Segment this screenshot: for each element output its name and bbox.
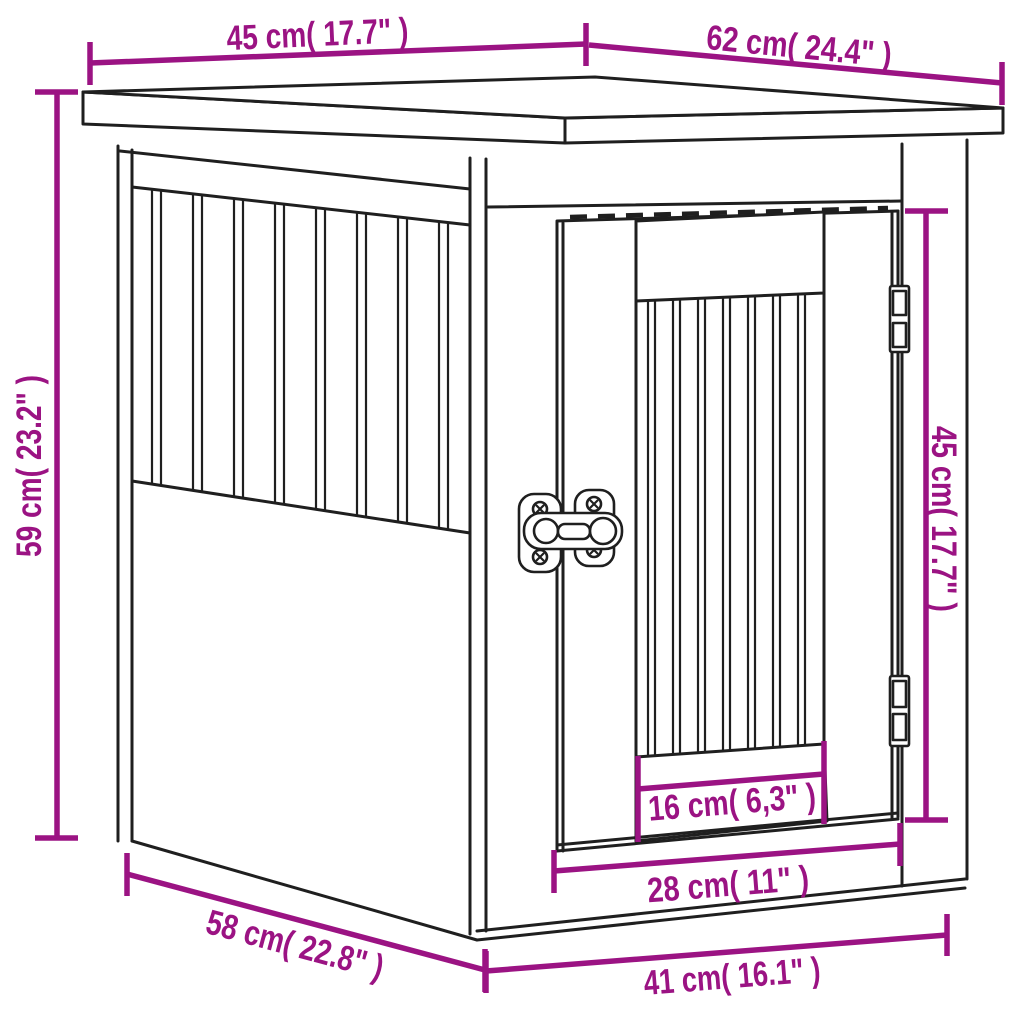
slat (193, 194, 202, 492)
dimension-label: 58 cm( 22.8" ) (202, 903, 388, 988)
left-side-panel (118, 146, 486, 940)
hinge-barrel (893, 714, 906, 740)
hinge-barrel (893, 291, 906, 315)
door-bar (648, 300, 655, 756)
side-top-rail-bottom-edge (132, 187, 470, 225)
dimension-top-depth: 45 cm( 17.7" ) (90, 11, 586, 85)
hinge-barrel (893, 681, 906, 707)
dimension-door-height: 45 cm( 17.7" ) (905, 211, 963, 820)
door-bar (673, 299, 680, 754)
latch-slot (558, 524, 590, 539)
door-bar (698, 298, 705, 753)
side-top-rail-top-edge (120, 151, 470, 189)
slat (357, 212, 366, 517)
slat (275, 203, 284, 505)
hinge-top (890, 286, 909, 352)
latch-pivot (534, 519, 558, 543)
dimension-label: 45 cm( 17.7" ) (226, 11, 410, 58)
hinge-barrel (893, 323, 906, 347)
dimension-label: 45 cm( 17.7" ) (924, 426, 963, 612)
door-latch (519, 490, 622, 572)
dimension-overall-height: 59 cm( 23.2" ) (10, 92, 78, 838)
door-bar (748, 296, 755, 749)
door-bar (798, 294, 805, 746)
tabletop (83, 77, 1003, 143)
dimension-label: 59 cm( 23.2" ) (10, 375, 49, 557)
dimension-base-depth: 58 cm( 22.8" ) (127, 853, 485, 992)
door-bar (723, 297, 730, 751)
slat (234, 199, 243, 498)
dimension-label: 28 cm( 11" ) (646, 859, 811, 911)
left-panel-slats (152, 189, 448, 530)
slat (152, 189, 161, 486)
door-bars (648, 294, 805, 756)
diagram-canvas: 45 cm( 17.7" ) 62 cm( 24.4" ) 59 cm( 23.… (0, 0, 1024, 1024)
door-bar (773, 295, 780, 747)
product-dimension-diagram: 45 cm( 17.7" ) 62 cm( 24.4" ) 59 cm( 23.… (0, 0, 1024, 1024)
hinge-bottom (890, 676, 909, 746)
front-header-bottom-edge (488, 201, 902, 207)
dimension-front-width: 41 cm( 16.1" ) (486, 914, 947, 1003)
slat (439, 222, 448, 530)
slat (316, 208, 325, 511)
slat (398, 217, 407, 524)
side-bottom-rail-top-edge (132, 481, 470, 533)
door-top-rail-panel (636, 212, 824, 301)
latch-knob (590, 518, 616, 544)
